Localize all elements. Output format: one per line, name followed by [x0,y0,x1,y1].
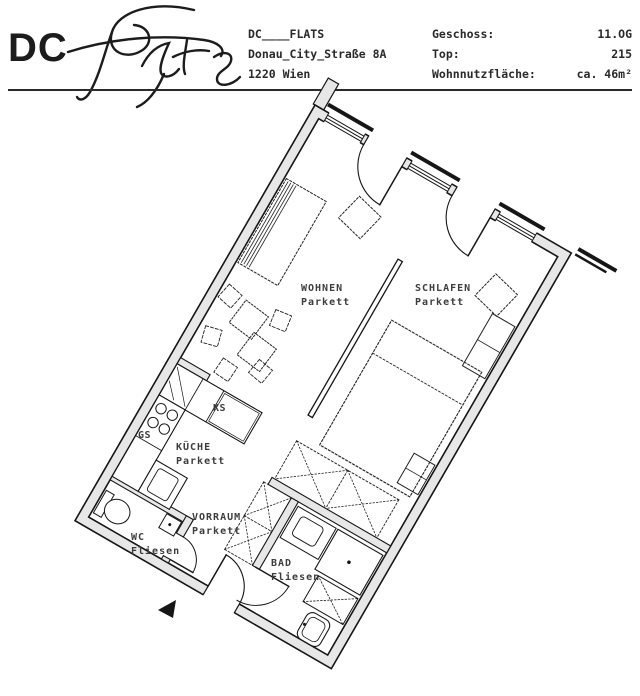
room-floor-type: Fliesen [271,571,320,585]
room-floor-type: Parkett [415,296,471,310]
room-label-wohnen: WOHNEN Parkett [301,282,350,310]
room-floor-type: Parkett [176,455,225,469]
room-floor-type: Parkett [301,296,350,310]
floorplan-page: { "header": { "logo_text": "DC", "logo_s… [0,0,640,696]
room-label-schlafen: SCHLAFEN Parkett [415,282,471,310]
neighbour-wall-stub [313,78,338,110]
entrance-arrow-icon [158,600,176,618]
floorplan-drawing [0,0,640,696]
room-name: WOHNEN [301,283,343,294]
room-name: VORRAUM [192,512,241,523]
room-floor-type: Parkett [192,525,241,539]
room-label-vorraum: VORRAUM Parkett [192,511,241,539]
room-name: KÜCHE [176,442,211,453]
room-floor-type: Fliesen [131,545,180,559]
room-label-kueche: KÜCHE Parkett [176,441,225,469]
appliance-label-gs: GS [138,430,151,441]
room-label-bad: BAD Fliesen [271,557,320,585]
room-name: WC [131,532,145,543]
room-label-wc: WC Fliesen [131,531,180,559]
appliance-label-ks: KS [213,403,226,414]
room-name: BAD [271,558,292,569]
room-name: SCHLAFEN [415,283,471,294]
